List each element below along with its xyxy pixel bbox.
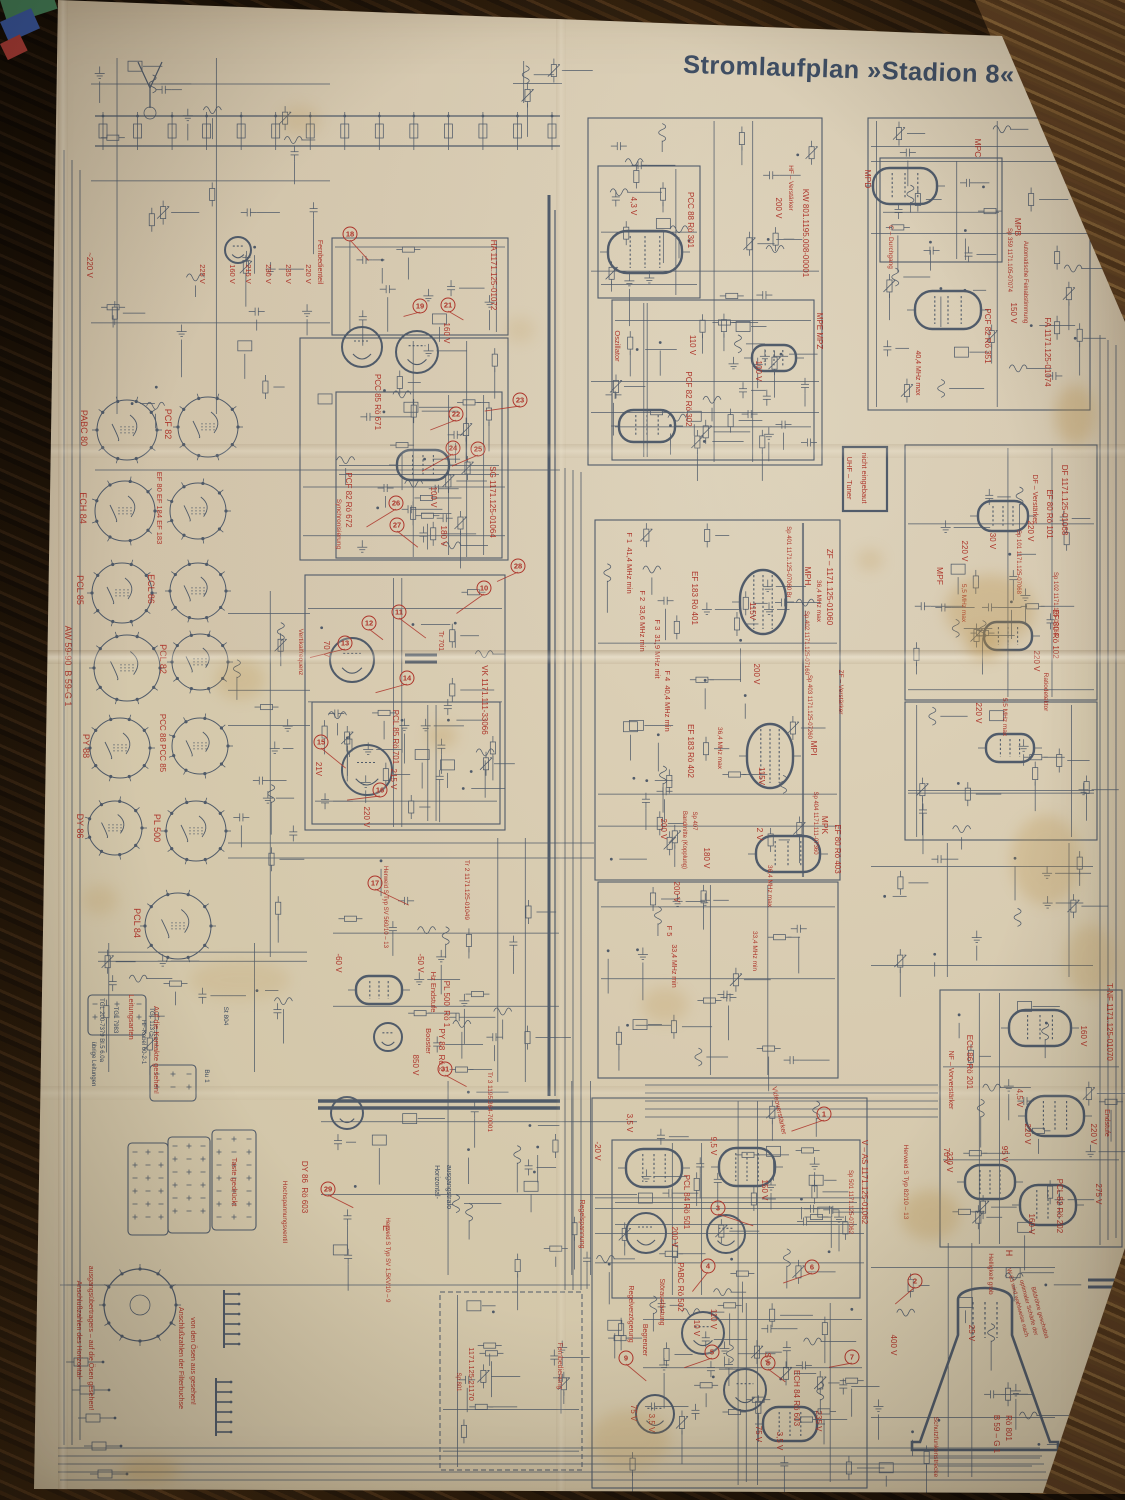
schematic-annotation: 200 V [670,1227,678,1248]
schematic-annotation: Begrenzer [641,1324,648,1356]
schematic-annotation: MPD [864,170,873,189]
schematic-annotation: TGL 11375 [148,1007,154,1036]
schematic-annotation: EF 183 Rö 401 [690,571,698,625]
schematic-annotation: ZF – 1171.125-01060 [825,549,833,625]
circled-number: 17 [368,876,383,891]
schematic-annotation: 220 V [945,1152,953,1173]
schematic-annotation: 36,4 MHz max [766,865,773,907]
schematic-annotation: TGL 200-7379 Bl.5 6.0a [98,998,104,1062]
schematic-annotation: Hochspannungsventil [281,1181,288,1243]
schematic-annotation: DF 1171.125-01068 [1060,465,1068,536]
schematic-annotation: Tr 3 1195.364-70001 [486,1072,493,1132]
schematic-annotation: 33,4 MHz min [751,931,758,971]
schematic-annotation: 5,5 MHz max [1001,698,1008,736]
schematic-annotation: HA 1171.125-01072 [489,240,497,311]
schematic-annotation: 215 V [245,264,253,284]
schematic-annotation: Regelverzögerung [627,1285,634,1342]
schematic-annotation: EF 183 Rö 402 [686,724,694,778]
schematic-annotation: 9,5 V [709,1137,717,1156]
schematic-sheet: Stromlaufplan »Stadion 8« ~220 VFernbedi… [0,0,1125,1500]
schematic-annotation: PL 500 Rö 1 [442,981,450,1027]
schematic-annotation: 4,3 V [629,197,637,216]
schematic-annotation: V – AS 1171.125-01062 [860,1140,868,1224]
schematic-annotation: 225 V [199,264,207,284]
schematic-annotation: MPI [810,740,819,755]
schematic-annotation: Rö 801 [1004,1415,1012,1441]
schematic-annotation: PCL 85 Rö 701 [391,710,399,764]
schematic-annotation: 220 V [362,807,370,828]
schematic-annotation: F 1 41,4 MHz min [626,532,634,593]
tube-chart-label: ECH 84 [78,492,87,524]
tube-chart-label: PABC 80 [79,410,88,446]
schematic-annotation: 75 V [754,1426,762,1442]
schematic-annotation: C – Durchgang [887,225,894,269]
schematic-annotation: 115V [748,602,756,620]
schematic-annotation: F 3 31,9 MHz mit [654,619,662,678]
circled-number: 31 [438,1062,453,1077]
schematic-annotation: MPC [974,139,983,158]
paper-crease [58,0,68,1500]
schematic-annotation: F 4 40,4 MHz min [664,670,672,731]
schematic-annotation: 2 V [756,828,765,841]
schematic-annotation: Anschlußzahlen der Filterbuchse [177,1307,184,1409]
paper-stain [857,549,883,571]
schematic-annotation: 3,5 V [625,1114,633,1133]
schematic-annotation: Schutzfunkenstrecke [932,1417,939,1477]
schematic-annotation: Sp 401 1171.125-07060 Br [785,526,791,598]
schematic-annotation: 220 V [1026,521,1034,542]
paper-stain [505,317,535,343]
paper-stain [190,960,290,1000]
schematic-annotation: Sp 501 1171.125-07062 [847,1170,853,1234]
schematic-annotation: 110 V [709,1309,717,1329]
schematic-annotation: PCF 82 Rö 672 [344,472,352,527]
schematic-annotation: NF – Vorverstärker [947,1051,954,1110]
circled-number: 26 [389,496,404,511]
schematic-annotation: PCC 85 Rö 671 [373,374,381,430]
circled-number: 15 [314,735,329,750]
schematic-annotation: 200 V [659,819,667,840]
schematic-annotation: B 59 – G 1 [992,1415,1000,1453]
schematic-annotation: 100 V [429,487,437,508]
tube-chart-label: EF 80 EF 184 EF 183 [156,472,164,545]
circled-number: 9 [619,1351,634,1366]
schematic-annotation: 36,4 MHz max [815,580,822,622]
schematic-annotation: 220 V [960,541,968,562]
schematic-annotation: Störaustastung [658,1278,665,1325]
schematic-annotation: 850 V [411,1055,419,1076]
schematic-annotation: 220 V [1023,1124,1031,1145]
paper-stain [1065,925,1115,995]
paper-stain [1011,815,1081,905]
schematic-annotation: Bandmitte (Kopplung) [681,811,687,869]
circled-number: 14 [400,671,415,686]
schematic-annotation: MPK [821,816,830,834]
circled-number: 27 [390,518,405,533]
circled-number: 23 [513,393,528,408]
schematic-annotation: 275 V [1094,1184,1102,1205]
schematic-annotation: 40,4 MHz max [914,350,921,395]
schematic-annotation: -60 V [334,953,342,972]
schematic-annotation: H [1004,1250,1013,1257]
schematic-annotation: 10 V [692,1320,700,1336]
schematic-annotation: 115V [757,767,765,785]
schematic-annotation: 160 V [1027,1214,1035,1235]
schematic-annotation: SG 1171.125-01064 [488,466,496,537]
schematic-annotation: 230 V [265,264,273,284]
schematic-annotation: PCF 82 Rö 302 [684,371,692,426]
circled-number: 2 [908,1274,923,1289]
circled-number: 5 [705,1345,720,1360]
schematic-annotation: Hz Endstufe [430,972,438,1013]
schematic-annotation: von den Ösen aus gesehen! [189,1317,196,1405]
schematic-annotation: 25 V [967,1325,975,1341]
schematic-annotation: St 804 [222,1007,229,1026]
schematic-annotation: Sp 801 [455,1372,461,1391]
schematic-annotation: TGL 7983 [112,1007,118,1033]
photo-scene: Stromlaufplan »Stadion 8« ~220 VFernbedi… [0,0,1125,1500]
circled-number: 18 [343,227,358,242]
circled-number: 28 [511,559,526,574]
paper-stain [120,1458,180,1482]
schematic-annotation: Sp 359 1171.105-07074 [1006,228,1012,292]
schematic-annotation: nicht eingebaut [861,453,869,504]
schematic-annotation: ausgangstrafo [445,1165,452,1209]
schematic-annotation: -50 V [416,953,424,972]
schematic-annotation: ~220 V [85,252,93,278]
paper-stain [280,105,320,135]
schematic-annotation: ECH 84 Rö 603 [792,1370,800,1426]
schematic-annotation: 180 V [702,848,710,869]
schematic-annotation: Sp 407 [691,811,697,830]
schematic-annotation: Synchronisierung [335,499,342,549]
schematic-annotation: FA 1171.125-01074 [1043,317,1051,386]
schematic-annotation: EF 80 Rö 101 [1045,489,1053,538]
schematic-annotation: 3,5 V [775,1432,783,1451]
paper-stain [215,660,265,700]
schematic-annotation: Automatische Feinabstimmung [1022,241,1028,323]
schematic-annotation: UHF – Tuner [846,457,854,500]
schematic-annotation: E [381,1225,390,1231]
schematic-annotation: F 2 33,6 MHz min [639,590,647,651]
tube-chart-label: DY 86 [75,814,84,839]
schematic-annotation: 150 V [1009,303,1017,324]
schematic-annotation: 30 V [988,533,996,549]
circled-number: 19 [413,299,428,314]
schematic-annotation: Horizontal- [433,1165,440,1199]
schematic-annotation: 1171.125-21170 [468,1347,476,1401]
circled-number: 7 [845,1350,860,1365]
circled-number: 6 [805,1260,820,1275]
circled-number: 11 [392,605,407,620]
paper-stain [82,885,118,915]
tube-chart-label: PCL 85 [75,575,84,605]
tube-chart-label: PL 500 [152,814,161,842]
schematic-annotation: Ratiodetektor [1042,673,1049,712]
schematic-annotation: ZF – Verstärker [837,670,844,715]
schematic-annotation: PCL 82 Rö 202 [1055,1179,1063,1233]
schematic-annotation: 150 V [760,1180,768,1201]
schematic-annotation: Tr 701 [437,631,444,651]
schematic-annotation: 200 V [752,664,760,685]
circled-number: 12 [362,616,377,631]
schematic-annotation: 95 V [1000,1146,1008,1162]
schematic-annotation: Regelspannung [578,1199,585,1248]
schematic-annotation: 100 V [754,361,762,382]
schematic-annotation: Tr 2 1171.125-01049 [463,860,470,920]
schematic-annotation: 33,4 MHz min [670,944,677,987]
schematic-annotation: 220 V [305,264,313,284]
schematic-annotation: 400 V [889,1335,897,1356]
schematic-annotation: 220 V [1089,1124,1097,1145]
paper-stain [967,630,1003,660]
schematic-annotation: Fernbedienteil [316,240,323,284]
schematic-annotation: 160 V [1079,1026,1087,1047]
circled-number: 22 [449,407,464,422]
paper-stain [642,987,688,1023]
schematic-annotation: MPE MPZ [815,313,823,349]
circled-number: 21 [441,298,456,313]
schematic-annotation: 160 V [229,264,237,284]
schematic-annotation: Bu 1 [203,1069,210,1082]
schematic-annotation: F 5 [666,926,674,937]
schematic-annotation: Booster [425,1028,433,1054]
schematic-annotation: DY 86 Rö 603 [300,1161,308,1213]
paper-stain [1055,385,1095,445]
schematic-annotation: Herweid S Typ SV 560/10 – 13 [382,866,388,948]
schematic-annotation: 220 V [974,703,982,724]
schematic-annotation: Sp 403 1171.125-07260 [806,675,812,739]
schematic-annotation: PABC Rö 502 [676,1262,684,1311]
schematic-annotation: Sp 404 1171.111-07360 [812,791,818,854]
schematic-annotation: Leitungsarten [128,994,136,1039]
schematic-annotation: Anschlußzahlen des Horizontal- [75,1281,82,1380]
tube-chart-label: PCF 82 [163,409,172,440]
schematic-annotation: MPF [936,567,945,585]
schematic-annotation: 235 V [814,1411,822,1432]
circled-number: 16 [373,783,388,798]
schematic-annotation: übrige Leitungen [90,1042,96,1087]
tube-chart-label: ECL 86 [146,574,155,604]
schematic-annotation: 21V [314,762,322,776]
tube-chart-label: PCL 84 [132,908,141,938]
schematic-annotation: 36,4 MHz max [716,727,723,769]
circled-number: 13 [338,636,353,651]
schematic-annotation: HF – Verstärker [787,165,794,211]
schematic-annotation: 235 V [285,264,293,284]
schematic-annotation: PCF 82 Rö 351 [983,308,991,363]
circled-number: 29 [321,1182,336,1197]
circled-number: 1 [817,1107,832,1122]
schematic-annotation: T-NF 1171.125-01070 [1105,983,1113,1061]
schematic-annotation: KW 801.1195.008-00001 [801,189,809,277]
tube-chart-label: PY 88 [81,734,90,758]
paper-stain [427,724,457,748]
schematic-annotation: 180 V [439,526,447,547]
schematic-annotation: Helligkeit grob [987,1253,994,1294]
schematic-annotation: ECL 86 Rö 201 [965,1035,973,1089]
schematic-annotation: VK 1171.111-33066 [480,665,488,734]
schematic-annotation: 160 V [442,323,450,344]
schematic-annotation: HF-Kabel 60-2-1 [140,1020,146,1064]
schematic-annotation: Endstufe [1103,1109,1110,1137]
schematic-annotation: ausgangsübertragers – auf die Ösen geseh… [87,1266,94,1410]
circled-number: 10 [477,581,492,596]
schematic-annotation: 200 V [774,198,782,219]
schematic-annotation: Taste gedrückt [231,1158,239,1207]
circled-number: 4 [701,1259,716,1274]
tube-chart-label: PCC 88 PCC 85 [158,714,166,772]
paper-stain [590,1410,670,1470]
paper-crease [556,0,566,1500]
schematic-annotation: 110 V [688,335,696,355]
schematic-annotation: EF 80 Rö 403 [833,824,841,873]
schematic-annotation: PCC 88 Rö 301 [686,192,694,248]
schematic-annotation: PCL 84 Rö 501 [682,1175,690,1229]
schematic-annotation: MPH [804,567,813,586]
schematic-annotation: Oszillator [614,330,622,361]
paper-stain [900,1190,960,1240]
circled-number: 8 [761,1356,776,1371]
circled-number: 3 [711,1201,726,1216]
schematic-annotation: Sp 402 1171.125-07160 [803,611,809,675]
schematic-annotation: 215 V [389,769,397,790]
schematic-annotation: DF – Verstärker [1031,474,1038,523]
schematic-annotation: 200 V [672,882,680,903]
schematic-annotation: MPB [1014,218,1023,236]
schematic-annotation: -20 V [593,1141,601,1160]
